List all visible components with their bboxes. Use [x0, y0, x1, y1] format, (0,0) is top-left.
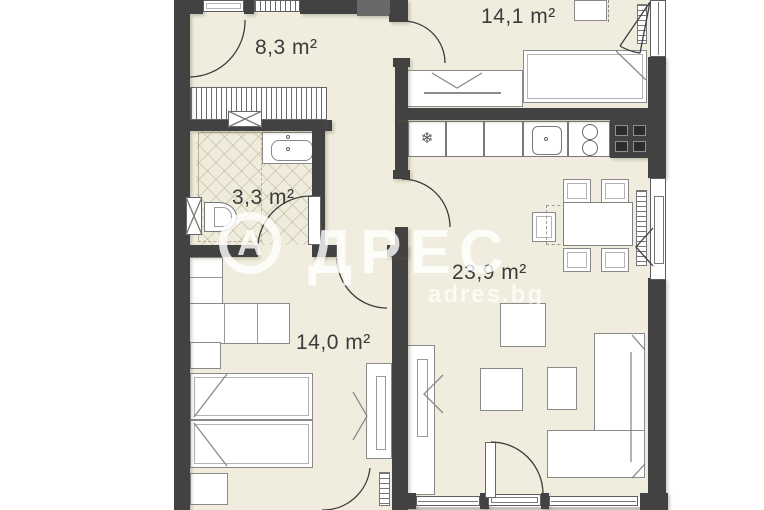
radiator: [637, 4, 647, 44]
dashed-line: [608, 0, 610, 22]
room-label-bedroom-bottom: 14,0 m²: [296, 331, 371, 355]
bathroom-door-leaf: [308, 196, 321, 245]
chair: [601, 179, 629, 203]
wall-segment: [300, 0, 357, 14]
wall-segment: [190, 245, 258, 257]
wall-segment: [190, 0, 203, 14]
wall-segment: [313, 245, 337, 257]
nightstand: [190, 473, 228, 505]
nightstand: [190, 342, 221, 369]
closet-horizontal: [189, 303, 290, 344]
window-bedroom-top: [650, 0, 666, 57]
sidelight-window: [254, 0, 300, 12]
wall-segment: [387, 245, 408, 257]
side-table: [547, 367, 577, 410]
entrance-door-leaf: [203, 0, 244, 12]
wardrobe-bedroom-top: [403, 70, 523, 107]
dining-table: [563, 202, 633, 246]
wall-segment: [408, 493, 416, 509]
window-balcony-right: [549, 496, 638, 506]
chair: [601, 248, 629, 272]
chair: [563, 179, 591, 203]
wall-segment: [390, 0, 408, 14]
wall-right-lower: [648, 278, 666, 497]
living-cabinet: [407, 345, 435, 495]
bed-single: [190, 373, 313, 420]
balcony-door-leaf: [485, 442, 496, 498]
window-balcony-left: [416, 496, 480, 506]
nightstand: [574, 0, 607, 21]
wall-right-upper: [648, 57, 666, 178]
wall-bedroom-living: [392, 257, 408, 510]
bathroom-sink: [262, 132, 318, 164]
shaft-cell: [633, 125, 646, 136]
kitchen-sink-unit: [523, 121, 568, 157]
utility-shaft: [610, 112, 652, 158]
wall-corner-br: [640, 493, 668, 510]
room-label-bathroom: 3,3 m²: [232, 186, 295, 210]
radiator: [379, 472, 390, 506]
room-label-living-room: 23,9 m²: [452, 261, 527, 285]
hall-wardrobe-box: [228, 111, 262, 127]
shaft-cell: [615, 141, 628, 152]
door-jamb: [393, 170, 410, 179]
bed-single: [190, 420, 313, 468]
door-jamb: [393, 58, 410, 67]
shaft-cell: [633, 141, 646, 152]
radiator: [636, 190, 647, 266]
room-label-hallway: 8,3 m²: [255, 36, 318, 60]
fridge-snowflake-icon: ❄: [421, 130, 434, 147]
chair: [563, 248, 591, 272]
door-jamb: [389, 14, 408, 22]
room-label-bedroom-top: 14,1 m²: [481, 5, 556, 29]
wardrobe-bedroom-bottom: [366, 363, 392, 459]
floor-plan: ❄: [0, 0, 764, 510]
kitchen-cabinet: [446, 121, 484, 157]
wall-segment: [541, 493, 549, 509]
sofa-seat-section: [547, 430, 645, 478]
shaft-cell: [615, 125, 628, 136]
wall-segment: [357, 0, 393, 16]
window-living: [650, 178, 666, 280]
kitchen-cabinet: [484, 121, 523, 157]
wall-left: [174, 0, 190, 510]
fridge: ❄: [408, 121, 446, 157]
bed-bedroom-top: [523, 50, 647, 103]
coffee-table: [500, 303, 546, 347]
duct-box: [186, 197, 202, 235]
stove: [568, 121, 610, 157]
wall-segment: [244, 0, 254, 14]
coffee-table: [480, 368, 523, 411]
closet-vertical: [189, 257, 223, 304]
